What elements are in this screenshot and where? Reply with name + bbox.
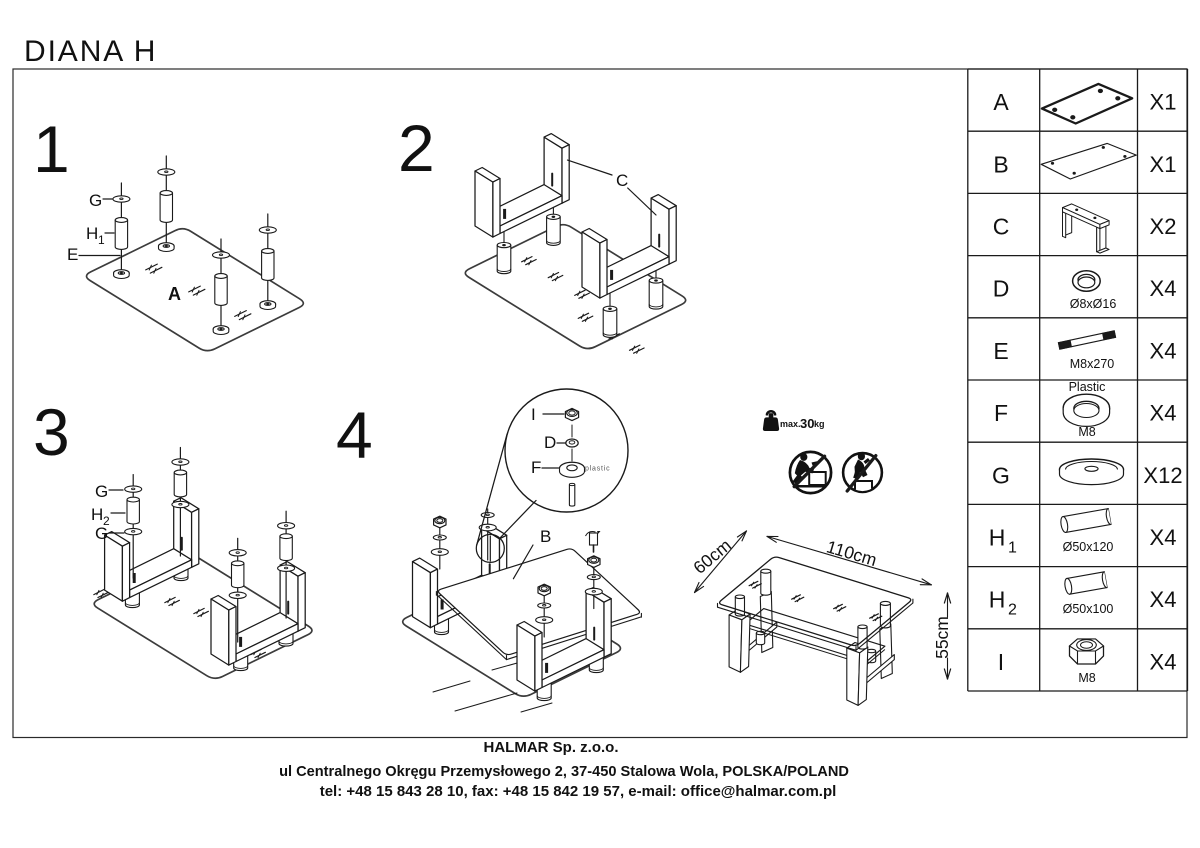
svg-text:H: H	[989, 587, 1006, 613]
svg-text:X4: X4	[1150, 401, 1177, 426]
svg-text:C: C	[993, 214, 1010, 240]
svg-text:F: F	[531, 458, 541, 477]
svg-text:G: G	[95, 524, 108, 543]
svg-text:A: A	[168, 284, 181, 304]
svg-text:X1: X1	[1150, 152, 1177, 177]
svg-text:B: B	[540, 527, 551, 546]
svg-text:C: C	[616, 171, 628, 190]
svg-text:Ø50x100: Ø50x100	[1063, 602, 1114, 616]
svg-text:G: G	[95, 482, 108, 501]
svg-text:F: F	[994, 400, 1008, 426]
svg-text:X12: X12	[1143, 463, 1182, 488]
svg-text:kg: kg	[814, 419, 825, 429]
svg-text:HALMAR Sp. z.o.o.: HALMAR Sp. z.o.o.	[484, 739, 619, 756]
svg-text:I: I	[531, 405, 536, 424]
svg-text:2: 2	[398, 111, 435, 185]
svg-text:4: 4	[336, 398, 373, 472]
svg-text:ul Centralnego Okręgu Przemysł: ul Centralnego Okręgu Przemysłowego 2, 3…	[279, 764, 849, 780]
svg-text:Plastic: Plastic	[1069, 380, 1106, 394]
svg-text:D: D	[544, 433, 556, 452]
svg-text:X2: X2	[1150, 214, 1177, 239]
svg-text:DIANA H: DIANA H	[24, 35, 157, 68]
svg-text:M8x270: M8x270	[1070, 357, 1115, 371]
svg-text:30: 30	[800, 416, 814, 431]
svg-text:M8: M8	[1078, 425, 1095, 439]
svg-text:2: 2	[1008, 602, 1017, 619]
svg-text:plastic: plastic	[585, 466, 610, 473]
svg-text:X4: X4	[1150, 525, 1177, 550]
svg-text:3: 3	[33, 395, 70, 469]
svg-text:H: H	[91, 505, 103, 524]
svg-text:A: A	[993, 89, 1009, 115]
svg-text:H: H	[86, 224, 98, 243]
svg-text:55cm: 55cm	[932, 616, 952, 659]
svg-text:X1: X1	[1150, 90, 1177, 115]
svg-text:1: 1	[98, 233, 105, 247]
svg-text:1: 1	[33, 112, 70, 186]
svg-text:X4: X4	[1150, 276, 1177, 301]
svg-text:max.: max.	[780, 419, 801, 429]
svg-text:Ø50x120: Ø50x120	[1063, 540, 1114, 554]
svg-text:B: B	[993, 151, 1008, 177]
svg-text:I: I	[998, 649, 1004, 675]
svg-text:G: G	[89, 191, 102, 210]
svg-text:1: 1	[1008, 540, 1017, 557]
svg-text:X4: X4	[1150, 649, 1177, 674]
svg-text:Ø8xØ16: Ø8xØ16	[1070, 297, 1117, 311]
svg-text:tel: +48 15 843 28 10, fax: +4: tel: +48 15 843 28 10, fax: +48 15 842 1…	[320, 783, 837, 800]
svg-text:M8: M8	[1078, 671, 1095, 685]
svg-text:D: D	[993, 276, 1010, 302]
svg-text:H: H	[989, 525, 1006, 551]
svg-text:X4: X4	[1150, 587, 1177, 612]
svg-text:G: G	[992, 462, 1010, 488]
svg-text:E: E	[993, 338, 1008, 364]
svg-text:X4: X4	[1150, 338, 1177, 363]
svg-text:E: E	[67, 245, 78, 264]
svg-text:110cm: 110cm	[824, 536, 879, 570]
